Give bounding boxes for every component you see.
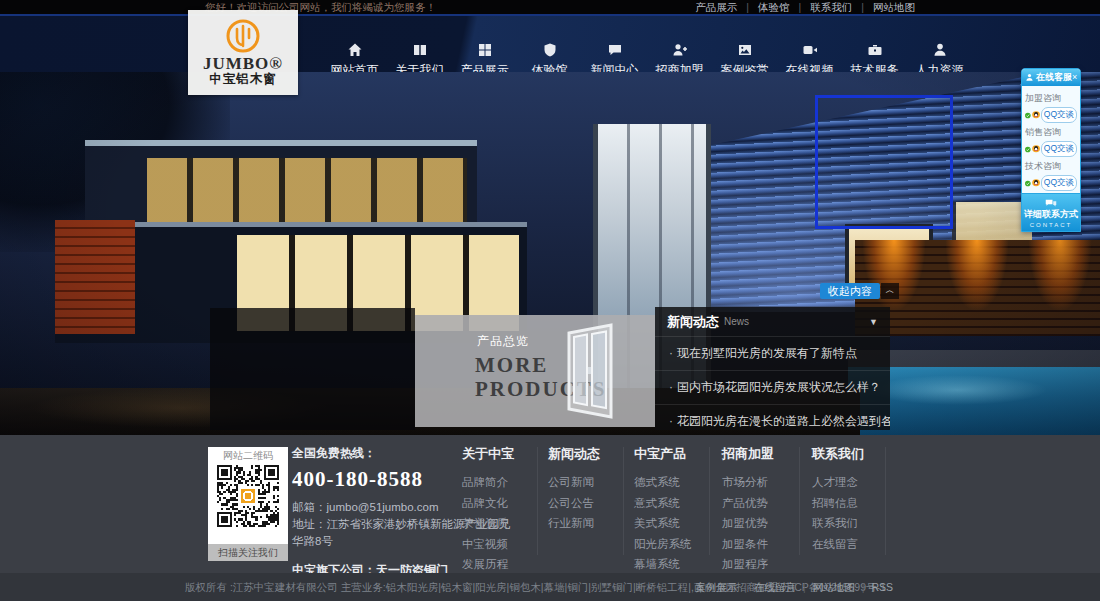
topbar-link-contact[interactable]: 联系我们 bbox=[790, 0, 853, 14]
logo-brand-text: JUMBO® bbox=[203, 56, 283, 72]
footer-link[interactable]: 德式系统 bbox=[634, 472, 692, 493]
bottom-bar: 版权所有 :江苏中宝建材有限公司 主营业务:铝木阳光房|铝木窗|阳光房|铜包木|… bbox=[0, 573, 1100, 601]
online-check-icon bbox=[1025, 179, 1031, 188]
service-group-label: 加盟咨询 bbox=[1025, 92, 1077, 105]
qr-code bbox=[217, 465, 279, 527]
service-person-icon bbox=[1025, 73, 1034, 82]
footer-link[interactable]: 发展历程 bbox=[462, 554, 514, 575]
qq-penguin-icon bbox=[1032, 177, 1040, 189]
online-check-icon bbox=[1025, 111, 1031, 120]
news-title: 新闻动态 bbox=[667, 313, 719, 331]
online-check-icon bbox=[1025, 145, 1031, 154]
footer-link[interactable]: 阳光房系统 bbox=[634, 534, 692, 555]
bottom-links: 案例展示 在线留言 网站地图 RSS bbox=[695, 573, 893, 601]
more-products-panel[interactable]: 产品总览 MORE PRODUCTS bbox=[415, 315, 655, 427]
footer-link[interactable]: 产品优势 bbox=[722, 493, 780, 514]
qq-penguin-icon bbox=[1032, 109, 1040, 121]
chevron-up-icon[interactable]: ︿ bbox=[881, 283, 899, 299]
news-item[interactable]: 花园阳光房在漫长的道路上必然会遇到各种挑战 bbox=[655, 404, 890, 438]
footer-link[interactable]: 行业新闻 bbox=[548, 513, 600, 534]
footer-link[interactable]: 加盟优势 bbox=[722, 513, 780, 534]
footer-link[interactable]: 美式系统 bbox=[634, 513, 692, 534]
footer-link[interactable]: 市场分析 bbox=[722, 472, 780, 493]
video-icon bbox=[802, 42, 818, 58]
qr-card: 网站二维码 扫描关注我们 bbox=[208, 447, 288, 561]
footer-column-contact: 联系我们 人才理念 招聘信息 联系我们 在线留言 bbox=[812, 445, 864, 554]
book-icon bbox=[412, 42, 428, 58]
chat-bubbles-icon bbox=[1045, 199, 1057, 208]
footer-column-news: 新闻动态 公司新闻 公司公告 行业新闻 bbox=[548, 445, 600, 534]
topbar-link-sitemap[interactable]: 网站地图 bbox=[852, 0, 915, 14]
footer-link[interactable]: 荣誉资质 bbox=[462, 513, 514, 534]
footer-link[interactable]: 中宝视频 bbox=[462, 534, 514, 555]
qq-chat-button[interactable]: QQ交谈 bbox=[1025, 175, 1077, 191]
footer-link[interactable]: 招聘信息 bbox=[812, 493, 864, 514]
close-icon[interactable]: × bbox=[1072, 73, 1077, 82]
grid-icon bbox=[477, 42, 493, 58]
footer-divider bbox=[799, 447, 800, 555]
footer-link[interactable]: 公司公告 bbox=[548, 493, 600, 514]
news-item[interactable]: 现在别墅阳光房的发展有了新特点 bbox=[655, 336, 890, 370]
footer-link[interactable]: 公司新闻 bbox=[548, 472, 600, 493]
qq-chat-button[interactable]: QQ交谈 bbox=[1025, 141, 1077, 157]
qq-penguin-icon bbox=[1032, 143, 1040, 155]
products-tag: 产品总览 bbox=[477, 333, 529, 350]
contact-details-button[interactable]: 详细联系方式 CONTACT bbox=[1022, 193, 1080, 231]
person-plus-icon bbox=[672, 42, 688, 58]
news-item[interactable]: 国内市场花园阳光房发展状况怎么样？ bbox=[655, 370, 890, 404]
topbar-link-products[interactable]: 产品展示 bbox=[695, 0, 737, 14]
company-logo[interactable]: JUMBO® 中宝铝木窗 bbox=[188, 10, 298, 95]
qr-title: 网站二维码 bbox=[223, 447, 273, 464]
topbar-link-showroom[interactable]: 体验馆 bbox=[737, 0, 789, 14]
footer-divider bbox=[885, 447, 886, 555]
online-service-panel: 在线客服 × 加盟咨询 QQ交谈 销售咨询 QQ交谈 技术咨询 QQ交谈 bbox=[1021, 68, 1081, 232]
footer-link[interactable]: 在线留言 bbox=[812, 534, 864, 555]
news-widget: 新闻动态 News ▼ 现在别墅阳光房的发展有了新特点 国内市场花园阳光房发展状… bbox=[655, 307, 890, 430]
collapse-content-button[interactable]: 收起内容 bbox=[820, 283, 880, 299]
footer-divider bbox=[537, 447, 538, 555]
footer-link[interactable]: 意式系统 bbox=[634, 493, 692, 514]
window-product-icon bbox=[567, 323, 613, 419]
service-group-label: 技术咨询 bbox=[1025, 160, 1077, 173]
footer-link[interactable]: 品牌文化 bbox=[462, 493, 514, 514]
briefcase-icon bbox=[867, 42, 883, 58]
top-utility-bar: 您好！欢迎访问公司网站，我们将竭诚为您服务！ 产品展示 体验馆 联系我们 网站地… bbox=[0, 0, 1100, 16]
chat-icon bbox=[607, 42, 623, 58]
bottom-link-rss[interactable]: RSS bbox=[855, 573, 893, 601]
shield-icon bbox=[542, 42, 558, 58]
home-icon bbox=[347, 42, 363, 58]
main-navbar: 网站首页 关于我们 产品展示 体验馆 新闻中心 招商加盟 案例鉴赏 bbox=[0, 16, 1100, 72]
footer-divider bbox=[709, 447, 710, 555]
footer-link[interactable]: 幕墙系统 bbox=[634, 554, 692, 575]
footer-link[interactable]: 联系我们 bbox=[812, 513, 864, 534]
footer-link[interactable]: 加盟条件 bbox=[722, 534, 780, 555]
chevron-down-icon[interactable]: ▼ bbox=[869, 317, 878, 327]
footer-link[interactable]: 加盟程序 bbox=[722, 554, 780, 575]
bottom-link-sitemap[interactable]: 网站地图 bbox=[796, 573, 855, 601]
bottom-link-message[interactable]: 在线留言 bbox=[737, 573, 796, 601]
qr-caption: 扫描关注我们 bbox=[208, 544, 288, 561]
news-subtitle: News bbox=[724, 316, 749, 327]
footer-link[interactable]: 品牌简介 bbox=[462, 472, 514, 493]
footer-divider bbox=[623, 447, 624, 555]
service-group-label: 销售咨询 bbox=[1025, 126, 1077, 139]
service-panel-title: 在线客服 bbox=[1036, 71, 1072, 84]
topbar-links: 产品展示 体验馆 联系我们 网站地图 bbox=[695, 0, 915, 14]
qq-chat-button[interactable]: QQ交谈 bbox=[1025, 107, 1077, 123]
photo-icon bbox=[737, 42, 753, 58]
logo-emblem-icon bbox=[225, 18, 261, 54]
slider-dark-panel bbox=[210, 308, 415, 430]
person-icon bbox=[932, 42, 948, 58]
site-footer: 网站二维码 扫描关注我们 全国免费热线： 400-180-8588 邮箱：jum… bbox=[0, 435, 1100, 573]
page: 您好！欢迎访问公司网站，我们将竭诚为您服务！ 产品展示 体验馆 联系我们 网站地… bbox=[0, 0, 1100, 601]
bottom-link-cases[interactable]: 案例展示 bbox=[695, 573, 737, 601]
logo-subtitle: 中宝铝木窗 bbox=[209, 72, 277, 87]
footer-link[interactable]: 人才理念 bbox=[812, 472, 864, 493]
